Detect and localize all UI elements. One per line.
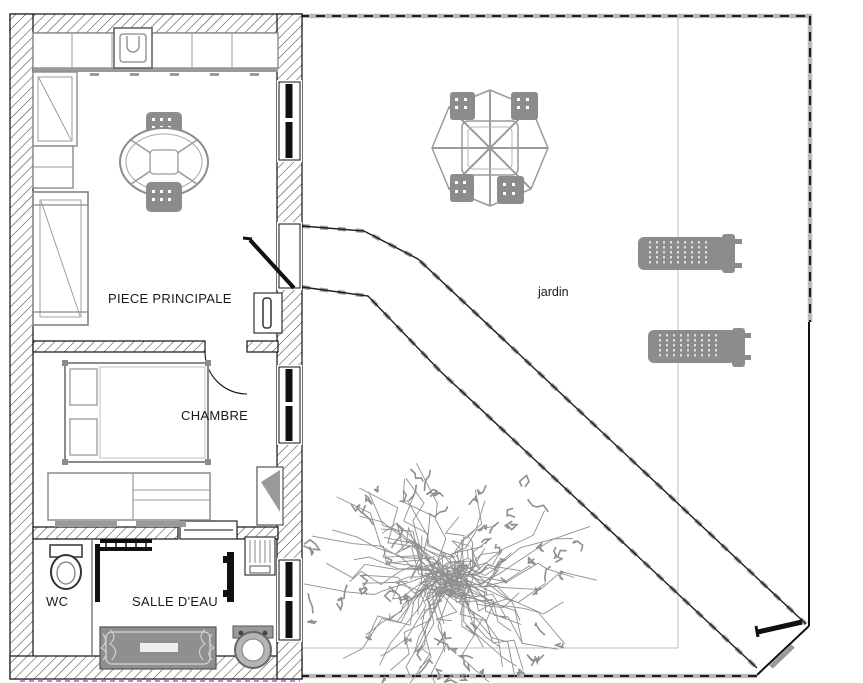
bathroom-label: SALLE D'EAU [132,594,218,609]
garden-door [243,224,300,288]
bedroom-label: CHAMBRE [181,408,248,423]
corner-shelf-bedroom [257,467,283,525]
sofa [33,192,88,325]
wardrobe-dresser [48,473,210,527]
water-heater [245,537,275,575]
wall-left [10,14,33,679]
floor-plan-canvas: PIECE PRINCIPALE CHAMBRE WC SALLE D'EAU … [0,0,863,683]
pillow [70,419,97,455]
wall-bedroom-bath-left [33,527,178,539]
window-bathroom [279,560,300,640]
kitchen-sink [114,28,152,68]
sun-lounger-1 [638,234,742,273]
door-leaf-wc [95,544,100,602]
main-room-label: PIECE PRINCIPALE [108,291,232,306]
kitchen-counter-top [33,28,278,76]
door-bedroom-bathroom [180,521,237,539]
radiator [254,293,282,333]
gate-leaf [756,622,802,637]
dining-chair-bottom [146,182,182,212]
garden-label: jardin [537,285,569,299]
garden-tree [304,463,597,683]
washbasin [233,626,273,668]
boundary-chamfer [757,626,809,675]
gate-opening [771,646,793,667]
wall-mainroom-bedroom-right [247,341,278,352]
dining-table-set [120,112,208,212]
toilet [50,545,82,589]
wall-top [10,14,302,33]
towel-radiator [100,539,152,551]
wc-label: WC [46,594,68,609]
sun-lounger-2 [648,328,751,367]
kitchen-units-left [33,72,77,188]
floor-plan-drawing: PIECE PRINCIPALE CHAMBRE WC SALLE D'EAU … [0,0,863,683]
window-bedroom [279,367,300,443]
bathtub [100,627,216,669]
shower-screen [223,552,234,602]
wall-mainroom-bedroom-left [33,341,205,352]
window-main-room [279,82,300,160]
door-arc-bedroom [205,352,247,394]
patio-table-set [432,90,548,206]
pillow [70,369,97,405]
